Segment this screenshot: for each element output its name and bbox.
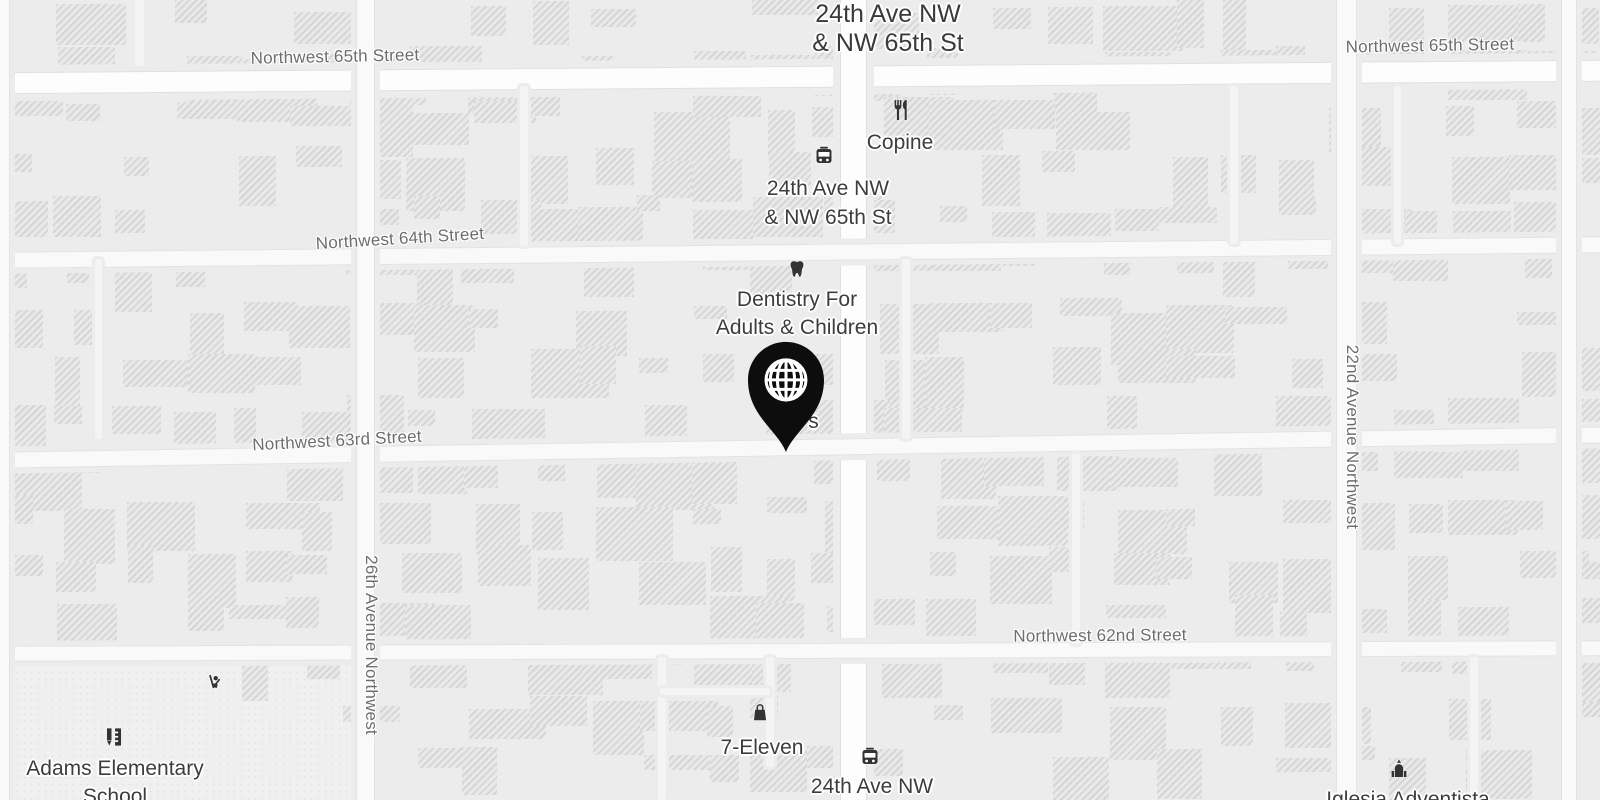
road-24th-ave-nw bbox=[840, 0, 867, 800]
street-label-22nd-avenue-northwest: 22nd Avenue Northwest bbox=[1342, 345, 1362, 529]
building-footprint bbox=[637, 195, 660, 211]
map-canvas[interactable]: Northwest 65th StreetNorthwest 65th Stre… bbox=[0, 0, 1600, 800]
building-footprint bbox=[418, 358, 464, 398]
building-footprint bbox=[1575, 399, 1600, 429]
map-pin-marker[interactable] bbox=[734, 340, 838, 454]
building-footprint bbox=[693, 210, 754, 239]
street-label-26th-avenue-northwest: 26th Avenue Northwest bbox=[361, 555, 381, 735]
building-footprint bbox=[593, 701, 645, 755]
building-footprint bbox=[1225, 307, 1287, 324]
building-footprint bbox=[1517, 312, 1560, 325]
building-footprint bbox=[74, 310, 97, 345]
building-footprint bbox=[188, 596, 224, 632]
dentistry-label-line: Adults & Children bbox=[716, 314, 878, 342]
building-footprint bbox=[1173, 157, 1208, 210]
building-footprint bbox=[1110, 458, 1178, 487]
alley bbox=[95, 259, 102, 439]
building-footprint bbox=[128, 545, 153, 583]
dentistry-label-line: Dentistry For bbox=[716, 286, 878, 314]
building-footprint bbox=[1047, 213, 1111, 243]
building-footprint bbox=[1408, 556, 1448, 600]
building-footprint bbox=[55, 357, 80, 406]
building-footprint bbox=[530, 696, 587, 726]
building-footprint bbox=[1405, 211, 1437, 237]
building-footprint bbox=[1394, 452, 1463, 477]
building-footprint bbox=[929, 100, 1003, 150]
building-footprint bbox=[807, 746, 833, 768]
building-footprint bbox=[1393, 252, 1448, 282]
building-footprint bbox=[1105, 655, 1169, 698]
building-footprint bbox=[12, 201, 49, 237]
building-footprint bbox=[538, 558, 589, 610]
building-footprint bbox=[521, 209, 584, 242]
building-footprint bbox=[1177, 0, 1204, 48]
bus-stop-62nd-label[interactable]: 24th Ave NW bbox=[811, 773, 933, 800]
building-footprint bbox=[289, 306, 350, 348]
alley bbox=[660, 688, 770, 695]
iglesia-adventista-label[interactable]: Iglesia Adventista bbox=[1326, 786, 1489, 800]
adams-school-label[interactable]: Adams ElementarySchool bbox=[26, 755, 203, 800]
building-footprint bbox=[990, 556, 1052, 604]
building-footprint bbox=[286, 555, 328, 575]
bag-icon[interactable] bbox=[749, 701, 771, 723]
building-footprint bbox=[596, 148, 634, 185]
building-footprint bbox=[1166, 356, 1236, 378]
building-footprint bbox=[242, 660, 268, 701]
building-footprint bbox=[53, 196, 101, 237]
alley bbox=[1072, 454, 1080, 644]
building-footprint bbox=[1575, 158, 1600, 183]
building-footprint bbox=[767, 559, 795, 601]
building-footprint bbox=[1053, 757, 1109, 800]
building-footprint bbox=[175, 0, 207, 23]
building-footprint bbox=[693, 96, 761, 118]
building-footprint bbox=[405, 605, 471, 649]
building-footprint bbox=[1408, 600, 1441, 645]
building-footprint bbox=[580, 346, 617, 384]
alley bbox=[1470, 657, 1478, 800]
building-footprint bbox=[591, 9, 636, 27]
street-label-northwest-65th-street: Northwest 65th Street bbox=[250, 45, 419, 69]
alley bbox=[520, 86, 528, 246]
alley bbox=[1230, 86, 1238, 244]
building-footprint bbox=[1276, 758, 1344, 772]
building-footprint bbox=[1166, 509, 1195, 526]
building-footprint bbox=[1048, 7, 1094, 43]
building-footprint bbox=[1517, 101, 1564, 128]
building-footprint bbox=[1291, 197, 1315, 214]
building-footprint bbox=[296, 146, 342, 168]
building-footprint bbox=[8, 555, 43, 576]
building-footprint bbox=[287, 461, 343, 501]
street-label-northwest-62nd-street: Northwest 62nd Street bbox=[1013, 625, 1187, 647]
building-footprint bbox=[302, 512, 332, 551]
building-footprint bbox=[990, 303, 1032, 328]
alley bbox=[902, 259, 910, 439]
building-footprint bbox=[1159, 207, 1217, 224]
seven-eleven-label-line: 7-Eleven bbox=[721, 734, 804, 762]
building-footprint bbox=[639, 358, 667, 373]
building-footprint bbox=[1506, 501, 1543, 530]
intersection-title-label[interactable]: 24th Ave NW& NW 65th St bbox=[812, 0, 963, 58]
building-footprint bbox=[1518, 4, 1545, 42]
building-footprint bbox=[124, 157, 149, 176]
building-footprint bbox=[532, 512, 563, 550]
iglesia-adventista-label-line: Iglesia Adventista bbox=[1326, 786, 1489, 800]
building-footprint bbox=[239, 156, 276, 206]
building-footprint bbox=[1509, 155, 1560, 189]
building-footprint bbox=[1156, 557, 1193, 579]
building-footprint bbox=[1522, 352, 1562, 397]
building-footprint bbox=[526, 96, 561, 116]
building-footprint bbox=[478, 545, 531, 586]
building-footprint bbox=[1235, 595, 1274, 643]
bus-stop-65th-label-line: 24th Ave NW bbox=[764, 174, 891, 203]
building-footprint bbox=[639, 562, 706, 605]
seven-eleven-label[interactable]: 7-Eleven bbox=[721, 734, 804, 762]
building-footprint bbox=[1283, 559, 1338, 613]
building-footprint bbox=[228, 357, 301, 386]
building-footprint bbox=[414, 305, 475, 352]
building-footprint bbox=[578, 207, 642, 248]
building-footprint bbox=[703, 354, 734, 382]
building-footprint bbox=[925, 357, 964, 411]
building-footprint bbox=[984, 451, 1043, 486]
building-footprint bbox=[66, 104, 100, 121]
alley bbox=[1394, 86, 1401, 244]
building-footprint bbox=[926, 599, 976, 636]
adams-school-label-line: School bbox=[26, 783, 203, 800]
building-footprint bbox=[115, 261, 152, 312]
church-icon[interactable] bbox=[1387, 757, 1411, 781]
building-footprint bbox=[940, 206, 968, 223]
building-footprint bbox=[982, 155, 1020, 206]
building-footprint bbox=[469, 309, 498, 328]
building-footprint bbox=[64, 509, 115, 564]
playground-icon[interactable] bbox=[204, 671, 226, 693]
building-footprint bbox=[1578, 348, 1600, 391]
building-footprint bbox=[692, 159, 742, 201]
building-footprint bbox=[767, 497, 808, 513]
building-footprint bbox=[1221, 155, 1256, 193]
building-footprint bbox=[523, 156, 567, 204]
building-footprint bbox=[1056, 112, 1130, 150]
copine-label-line: Copine bbox=[867, 129, 934, 157]
bus-stop-65th-label-line: & NW 65th St bbox=[764, 203, 891, 232]
bus-icon[interactable] bbox=[858, 745, 882, 769]
bus-stop-65th-label[interactable]: 24th Ave NW& NW 65th St bbox=[764, 174, 891, 232]
building-footprint bbox=[930, 552, 956, 576]
tooth-icon[interactable] bbox=[786, 258, 808, 280]
building-footprint bbox=[692, 455, 736, 504]
building-footprint bbox=[127, 502, 195, 551]
bus-icon[interactable] bbox=[812, 144, 836, 168]
building-footprint bbox=[286, 597, 319, 629]
building-footprint bbox=[56, 562, 96, 592]
building-footprint bbox=[290, 106, 352, 125]
alley bbox=[658, 657, 666, 800]
building-footprint bbox=[112, 406, 161, 434]
building-footprint bbox=[1581, 495, 1600, 539]
intersection-title-label-line: & NW 65th St bbox=[812, 29, 963, 58]
building-footprint bbox=[123, 360, 188, 386]
dentistry-label[interactable]: Dentistry ForAdults & Children bbox=[716, 286, 878, 342]
building-footprint bbox=[596, 507, 673, 561]
building-footprint bbox=[877, 450, 910, 481]
building-footprint bbox=[1221, 707, 1253, 746]
building-footprint bbox=[934, 705, 963, 720]
building-footprint bbox=[1106, 605, 1166, 618]
building-footprint bbox=[645, 405, 687, 440]
building-footprint bbox=[1103, 6, 1183, 51]
road-left-edge bbox=[0, 0, 10, 800]
intersection-title-label-line: 24th Ave NW bbox=[812, 0, 963, 29]
building-footprint bbox=[1042, 151, 1074, 172]
adams-school-label-line: Adams Elementary bbox=[26, 755, 203, 783]
building-footprint bbox=[1462, 447, 1519, 471]
building-footprint bbox=[12, 310, 43, 348]
road-right-edge bbox=[1561, 0, 1577, 800]
alley bbox=[135, 0, 144, 66]
building-footprint bbox=[1525, 256, 1552, 278]
building-footprint bbox=[402, 553, 463, 594]
building-footprint bbox=[462, 747, 497, 795]
building-footprint bbox=[1446, 106, 1474, 136]
building-footprint bbox=[654, 112, 730, 164]
building-footprint bbox=[1223, 250, 1255, 297]
building-footprint bbox=[707, 706, 733, 737]
building-footprint bbox=[1053, 347, 1101, 385]
building-footprint bbox=[652, 161, 695, 198]
building-footprint bbox=[1115, 209, 1159, 232]
building-footprint bbox=[693, 509, 721, 524]
bus-stop-62nd-label-line: 24th Ave NW bbox=[811, 773, 933, 800]
building-footprint bbox=[408, 410, 435, 426]
building-footprint bbox=[1157, 749, 1201, 799]
street-label-northwest-65th-street: Northwest 65th Street bbox=[1346, 35, 1515, 58]
building-footprint bbox=[533, 1, 569, 44]
building-footprint bbox=[115, 210, 145, 233]
building-footprint bbox=[54, 406, 82, 424]
building-footprint bbox=[56, 4, 126, 45]
building-footprint bbox=[993, 8, 1031, 29]
building-footprint bbox=[1292, 359, 1323, 388]
building-footprint bbox=[1288, 254, 1328, 269]
building-footprint bbox=[756, 603, 804, 639]
building-footprint bbox=[471, 6, 506, 36]
building-footprint bbox=[1409, 504, 1443, 533]
building-footprint bbox=[1452, 157, 1510, 205]
building-footprint bbox=[411, 113, 469, 145]
copine-label[interactable]: Copine bbox=[867, 129, 934, 157]
building-footprint bbox=[711, 547, 743, 592]
school-icon[interactable] bbox=[101, 724, 127, 750]
building-footprint bbox=[414, 196, 440, 218]
globe-icon bbox=[766, 360, 806, 400]
building-footprint bbox=[1214, 446, 1263, 496]
building-footprint bbox=[994, 100, 1055, 129]
building-footprint bbox=[865, 599, 914, 626]
restaurant-icon[interactable] bbox=[888, 98, 912, 122]
road-nw-62nd-st bbox=[0, 640, 1600, 662]
building-footprint bbox=[1401, 657, 1443, 672]
building-footprint bbox=[752, 0, 818, 15]
building-footprint bbox=[1280, 612, 1308, 640]
building-footprint bbox=[1223, 0, 1245, 51]
building-footprint bbox=[1049, 654, 1085, 684]
building-footprint bbox=[991, 698, 1062, 734]
building-footprint bbox=[1458, 607, 1509, 642]
